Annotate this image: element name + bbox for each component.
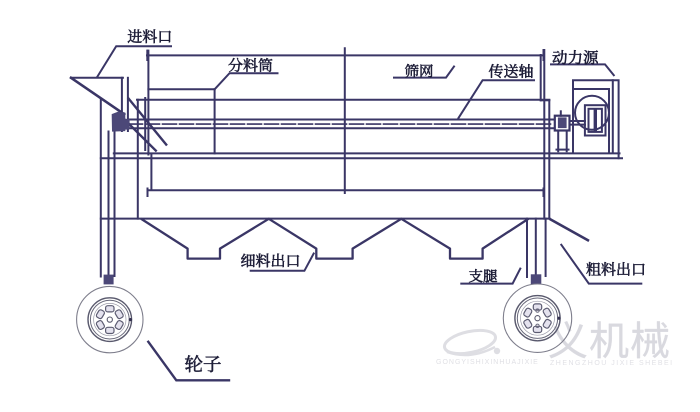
svg-text:GONGYISHIXINHUAJIXIE: GONGYISHIXINHUAJIXIE [436, 359, 539, 366]
svg-text:ZHENGZHOU JIXIE SHEBEI: ZHENGZHOU JIXIE SHEBEI [550, 360, 674, 367]
